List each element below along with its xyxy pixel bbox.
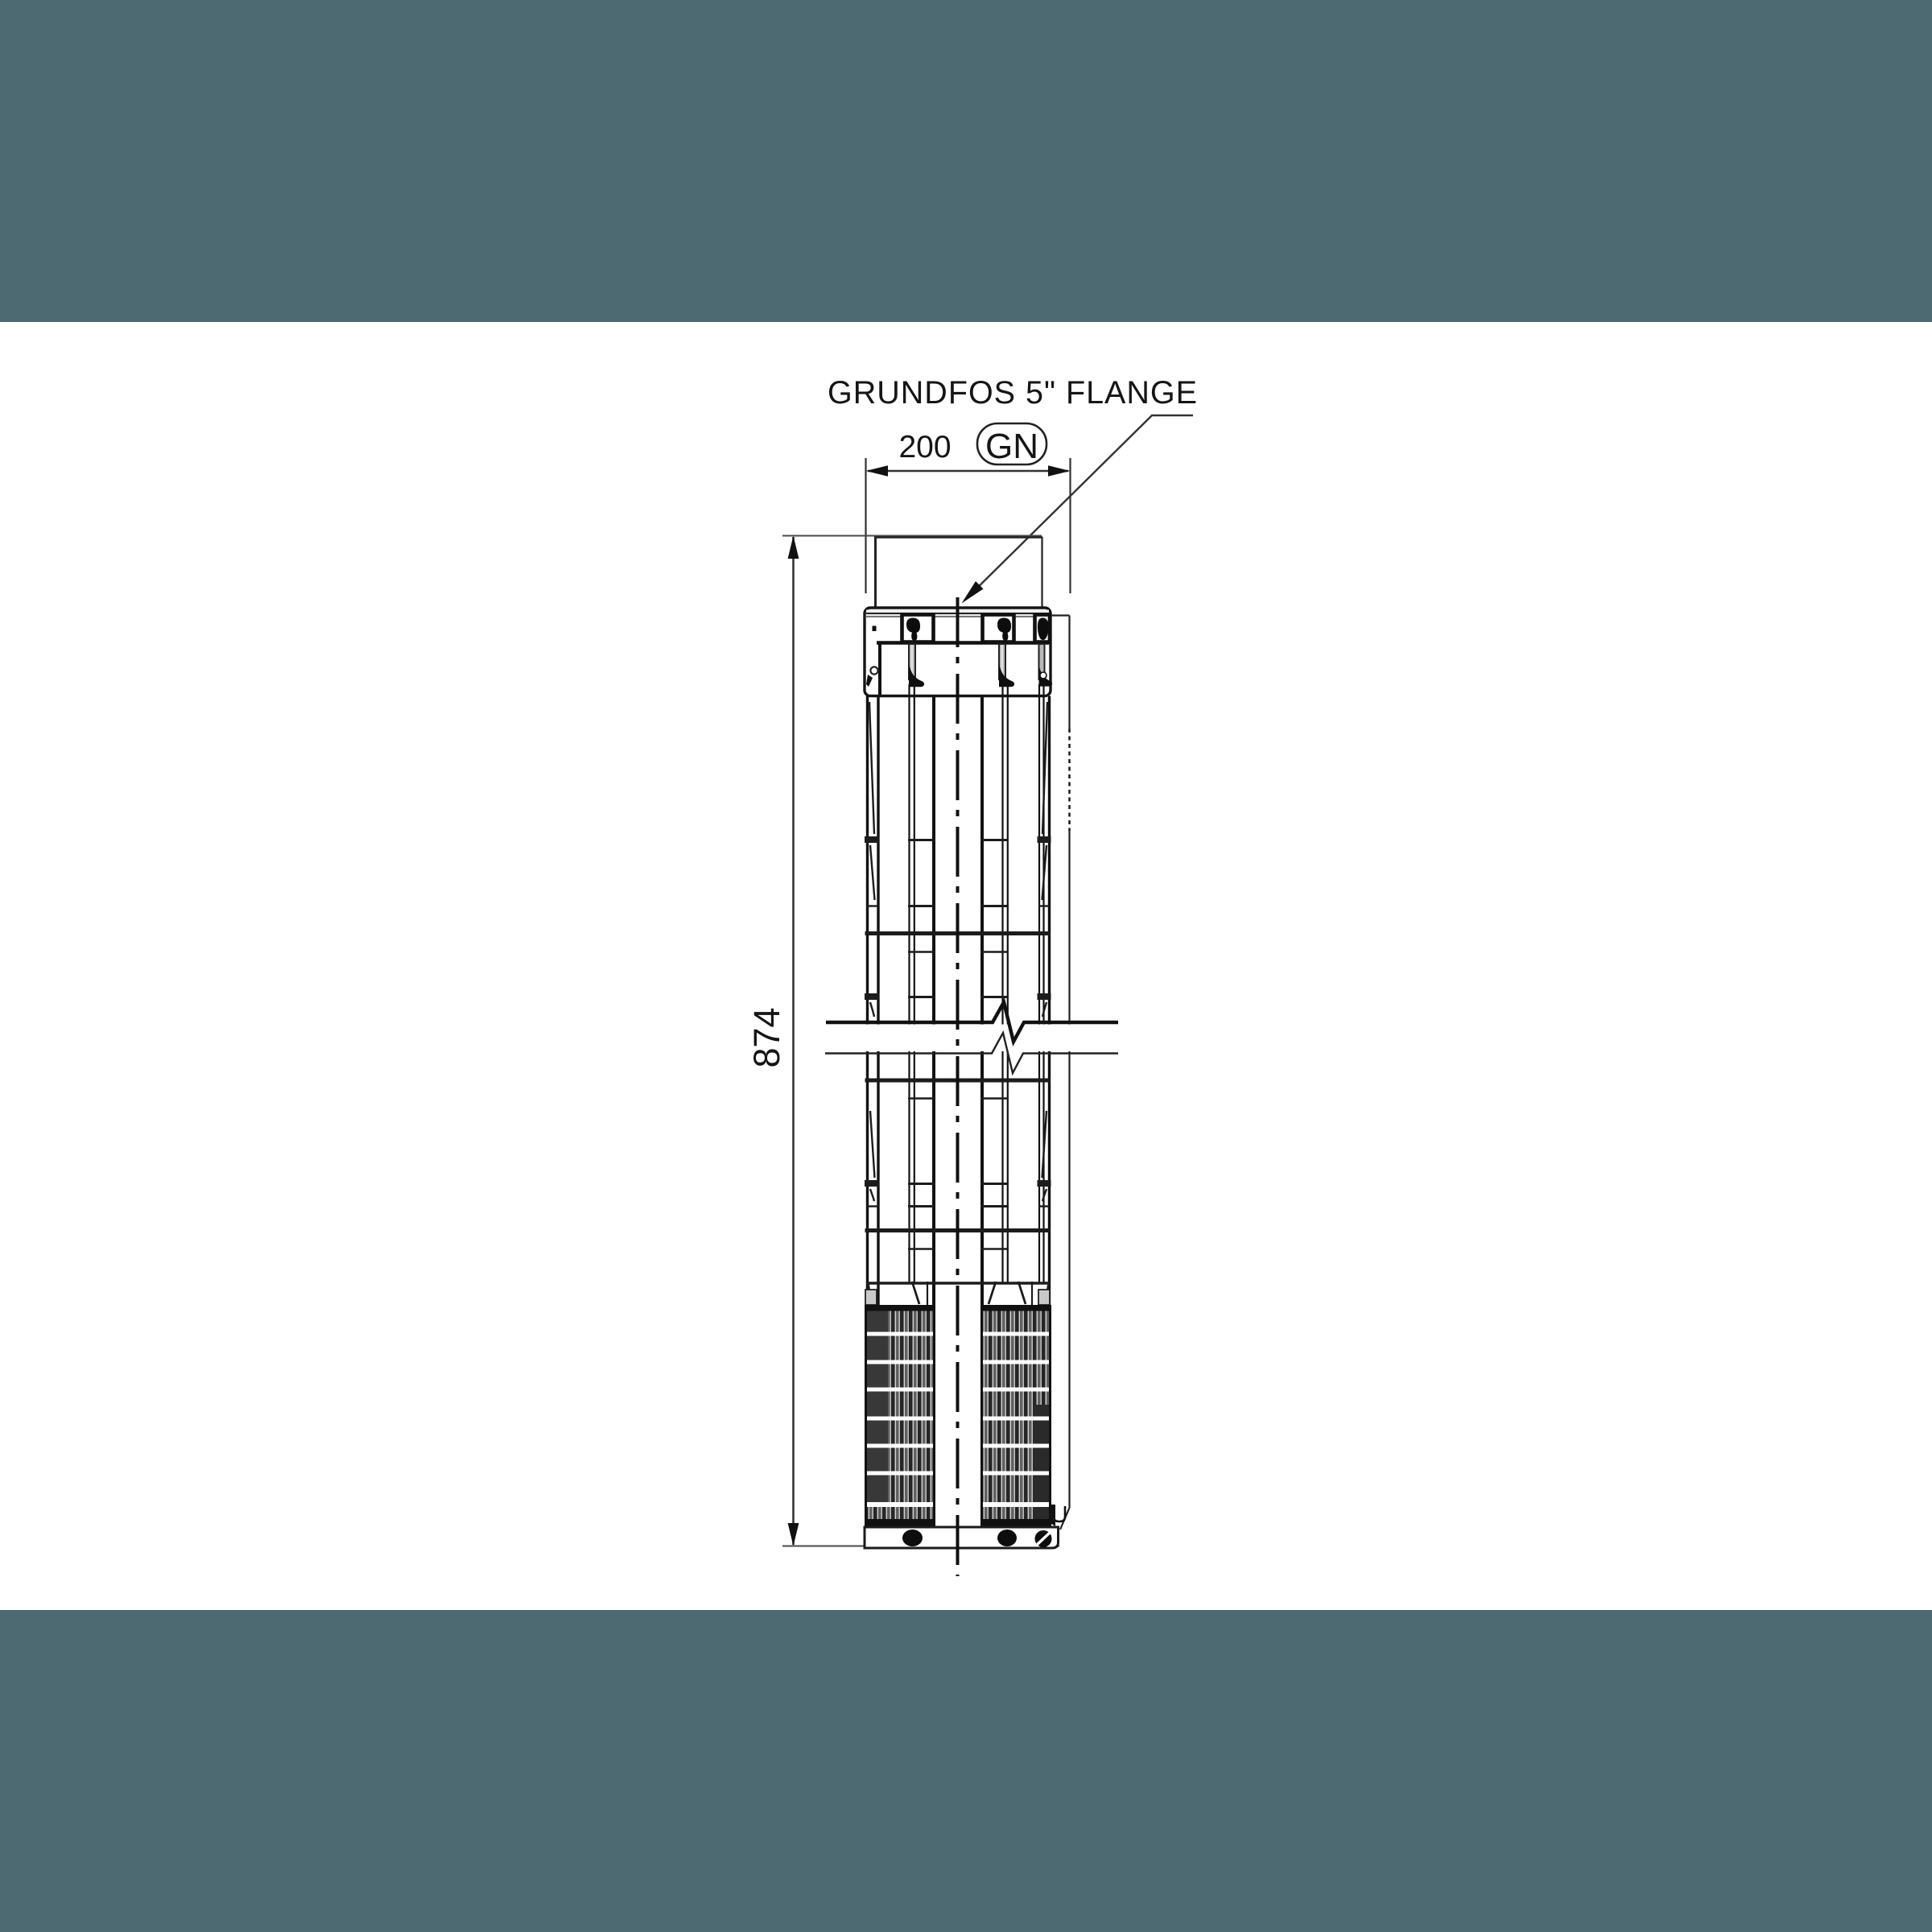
svg-text:874: 874 [746,1007,787,1067]
svg-text:GN: GN [985,427,1038,466]
svg-text:200: 200 [898,430,951,464]
svg-text:GRUNDFOS 5" FLANGE: GRUNDFOS 5" FLANGE [828,375,1198,411]
